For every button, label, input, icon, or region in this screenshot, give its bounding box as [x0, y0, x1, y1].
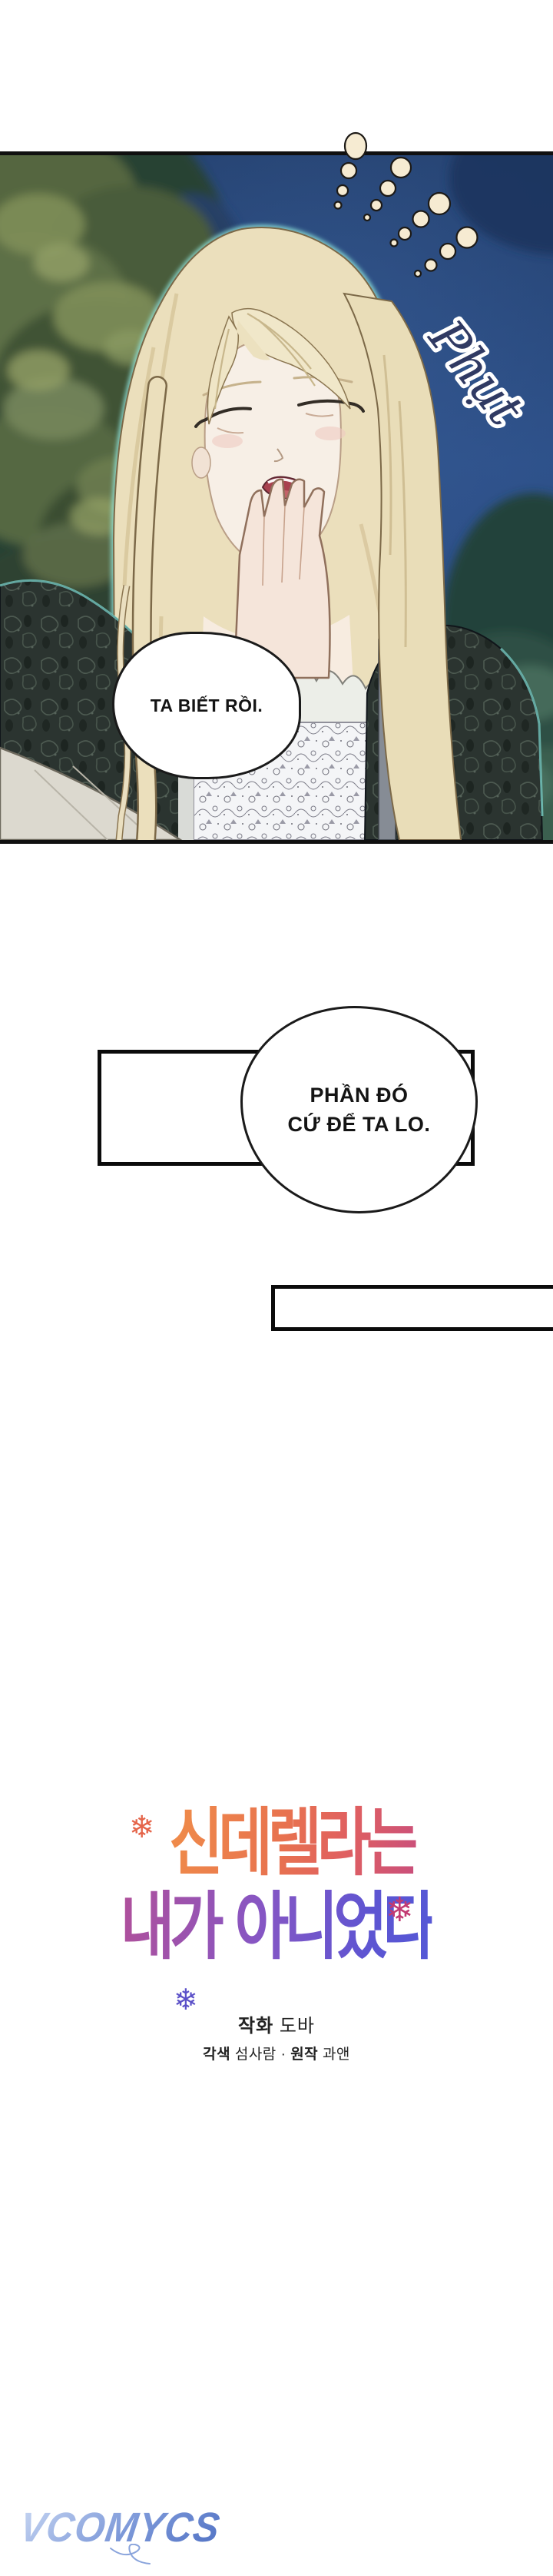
credit-name-original: 과앤: [323, 2047, 350, 2063]
speech-bubble-1: TA BIẾT RỒI.: [112, 632, 301, 779]
rose-flourish-icon: [108, 2544, 161, 2567]
credit-name-art: 도바: [280, 2016, 315, 2037]
title-line-1: 신데렐라는: [169, 1804, 416, 1882]
empty-panel-frame-2: [271, 1285, 553, 1331]
speech-bubble-2: PHẦN ĐÓ CỨ ĐỂ TA LO.: [240, 1006, 478, 1213]
credit-role-original: 원작: [290, 2047, 318, 2063]
watermark-logo: VCOMYCS: [17, 2507, 201, 2568]
credit-role-adaptation: 각색: [203, 2047, 230, 2063]
credits-line-2: 각색 섬사람 · 원작 과앤: [0, 2043, 553, 2063]
speech-bubble-1-text: TA BIẾT RỒI.: [151, 695, 263, 716]
webtoon-page: Phụt TA BIẾT RỒI. PHẦN ĐÓ CỨ ĐỂ TA LO. 신…: [0, 0, 553, 2576]
snowflake-icon: ❄: [129, 1812, 155, 1843]
credits-line-1: 작화 도바: [0, 2010, 553, 2037]
speech-bubble-2-line2: CỨ ĐỂ TA LO.: [288, 1112, 431, 1137]
ear: [192, 447, 210, 478]
snowflake-icon: ❄: [386, 1894, 414, 1927]
credit-separator: ·: [281, 2047, 286, 2063]
credit-name-adaptation: 섬사람: [235, 2047, 276, 2063]
snowflake-icon: ❄: [174, 1986, 198, 2015]
thought-bubble-trail: [326, 120, 480, 289]
series-title-logo: 신데렐라는 내가 아니었다: [0, 1804, 553, 1964]
speech-bubble-2-line1: PHẦN ĐÓ: [310, 1083, 408, 1107]
credit-role-art: 작화: [238, 2016, 273, 2037]
